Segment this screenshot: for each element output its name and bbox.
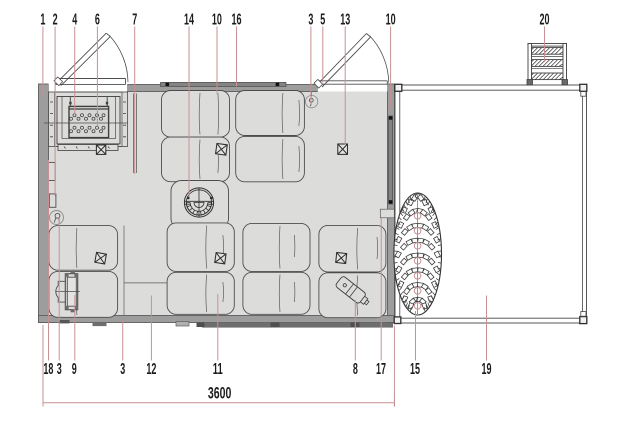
svg-text:15: 15 <box>410 361 420 378</box>
svg-text:10: 10 <box>386 12 396 29</box>
svg-text:2: 2 <box>53 12 58 29</box>
svg-text:9: 9 <box>72 361 77 378</box>
svg-text:17: 17 <box>376 361 386 378</box>
svg-text:20: 20 <box>540 12 550 29</box>
svg-text:14: 14 <box>184 12 194 29</box>
svg-text:10: 10 <box>212 12 222 29</box>
svg-text:6: 6 <box>95 12 100 29</box>
svg-text:19: 19 <box>482 361 492 378</box>
svg-text:18: 18 <box>43 361 53 378</box>
svg-text:3: 3 <box>120 361 125 378</box>
svg-text:13: 13 <box>340 12 350 29</box>
svg-text:16: 16 <box>232 12 242 29</box>
svg-text:3: 3 <box>57 361 62 378</box>
svg-text:1: 1 <box>40 12 45 29</box>
svg-text:7: 7 <box>132 12 137 29</box>
svg-text:4: 4 <box>72 12 77 29</box>
svg-text:5: 5 <box>320 12 325 29</box>
svg-text:8: 8 <box>353 361 358 378</box>
svg-text:3: 3 <box>308 12 313 29</box>
svg-text:11: 11 <box>213 361 223 378</box>
svg-text:3600: 3600 <box>208 385 231 403</box>
svg-text:12: 12 <box>146 361 156 378</box>
